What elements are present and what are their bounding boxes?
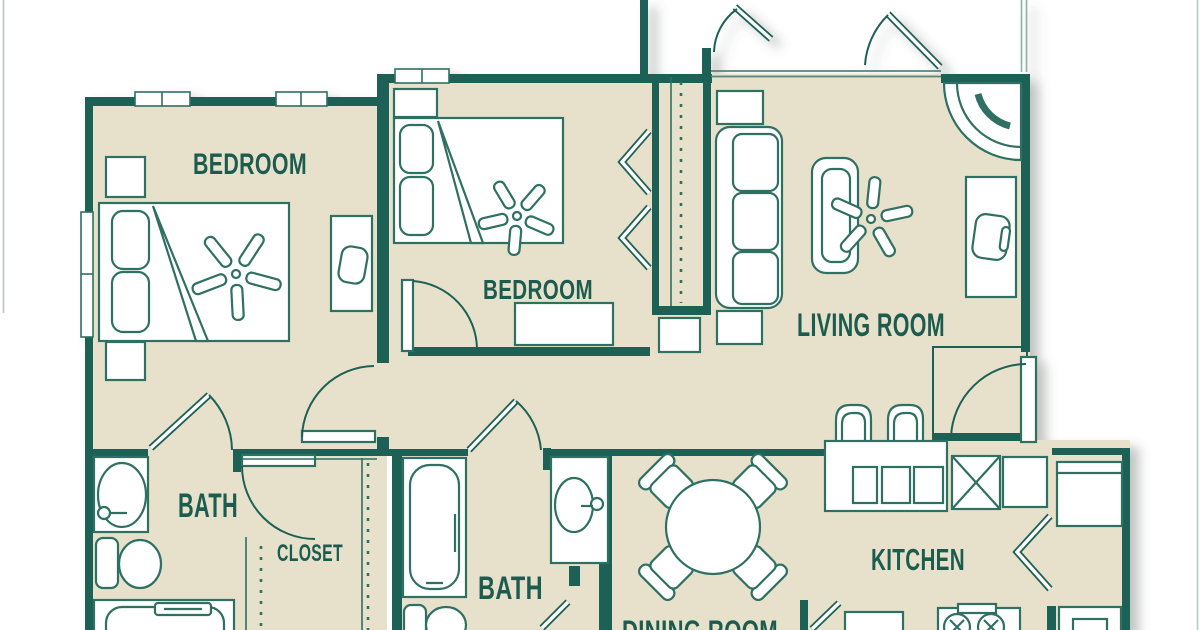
washer-icon (1059, 607, 1121, 630)
bathtub-icon (403, 458, 466, 597)
door-leaf (402, 280, 413, 351)
bathtub-icon (94, 600, 234, 630)
door-swing-arc (714, 9, 737, 52)
sink-vanity-icon (551, 457, 608, 563)
floor-plan: BEDROOM BEDROOM LIVING ROOM BATH CLOSET … (81, 0, 1130, 630)
end-table-icon (717, 311, 762, 344)
door-leaf (1021, 357, 1036, 442)
dresser-icon (331, 216, 372, 311)
door-swing-arc (865, 15, 888, 65)
dining-table-icon (666, 480, 760, 574)
door-leaf (302, 431, 375, 442)
bar-stool-icon (888, 405, 923, 443)
kitchen-label: KITCHEN (871, 542, 965, 577)
dishwasher-icon (952, 456, 1000, 509)
nightstand-icon (106, 342, 145, 380)
counter-icon (845, 612, 903, 630)
desk-icon (966, 177, 1016, 297)
toilet-icon (96, 538, 161, 588)
bath-left-label: BATH (178, 487, 238, 525)
sofa-icon (716, 127, 782, 308)
stove-icon (938, 604, 1020, 630)
toilet-icon (404, 605, 466, 630)
bedroom-left-label: BEDROOM (193, 148, 307, 181)
counter-icon (1003, 457, 1047, 507)
end-table-icon (717, 91, 763, 124)
door-leaf (242, 455, 315, 466)
closet-label: CLOSET (277, 540, 343, 567)
hall-table-icon (659, 318, 700, 352)
sink-vanity-icon (94, 457, 148, 532)
bath-middle-label: BATH (478, 570, 543, 606)
bedroom-middle-label: BEDROOM (483, 274, 593, 305)
floor-plan-canvas: BEDROOM BEDROOM LIVING ROOM BATH CLOSET … (0, 0, 1200, 630)
dining-room-label: DINING ROOM (622, 615, 778, 630)
living-room-label: LIVING ROOM (797, 307, 945, 343)
refrigerator-icon (1057, 462, 1122, 526)
bench-icon (515, 303, 613, 345)
bed-icon (99, 203, 289, 341)
nightstand-icon (106, 157, 145, 197)
nightstand-icon (394, 89, 437, 117)
floor-plan-drawing: BEDROOM BEDROOM LIVING ROOM BATH CLOSET … (0, 0, 1200, 630)
breakfast-bar-icon (825, 441, 947, 511)
bar-stool-icon (836, 405, 871, 443)
